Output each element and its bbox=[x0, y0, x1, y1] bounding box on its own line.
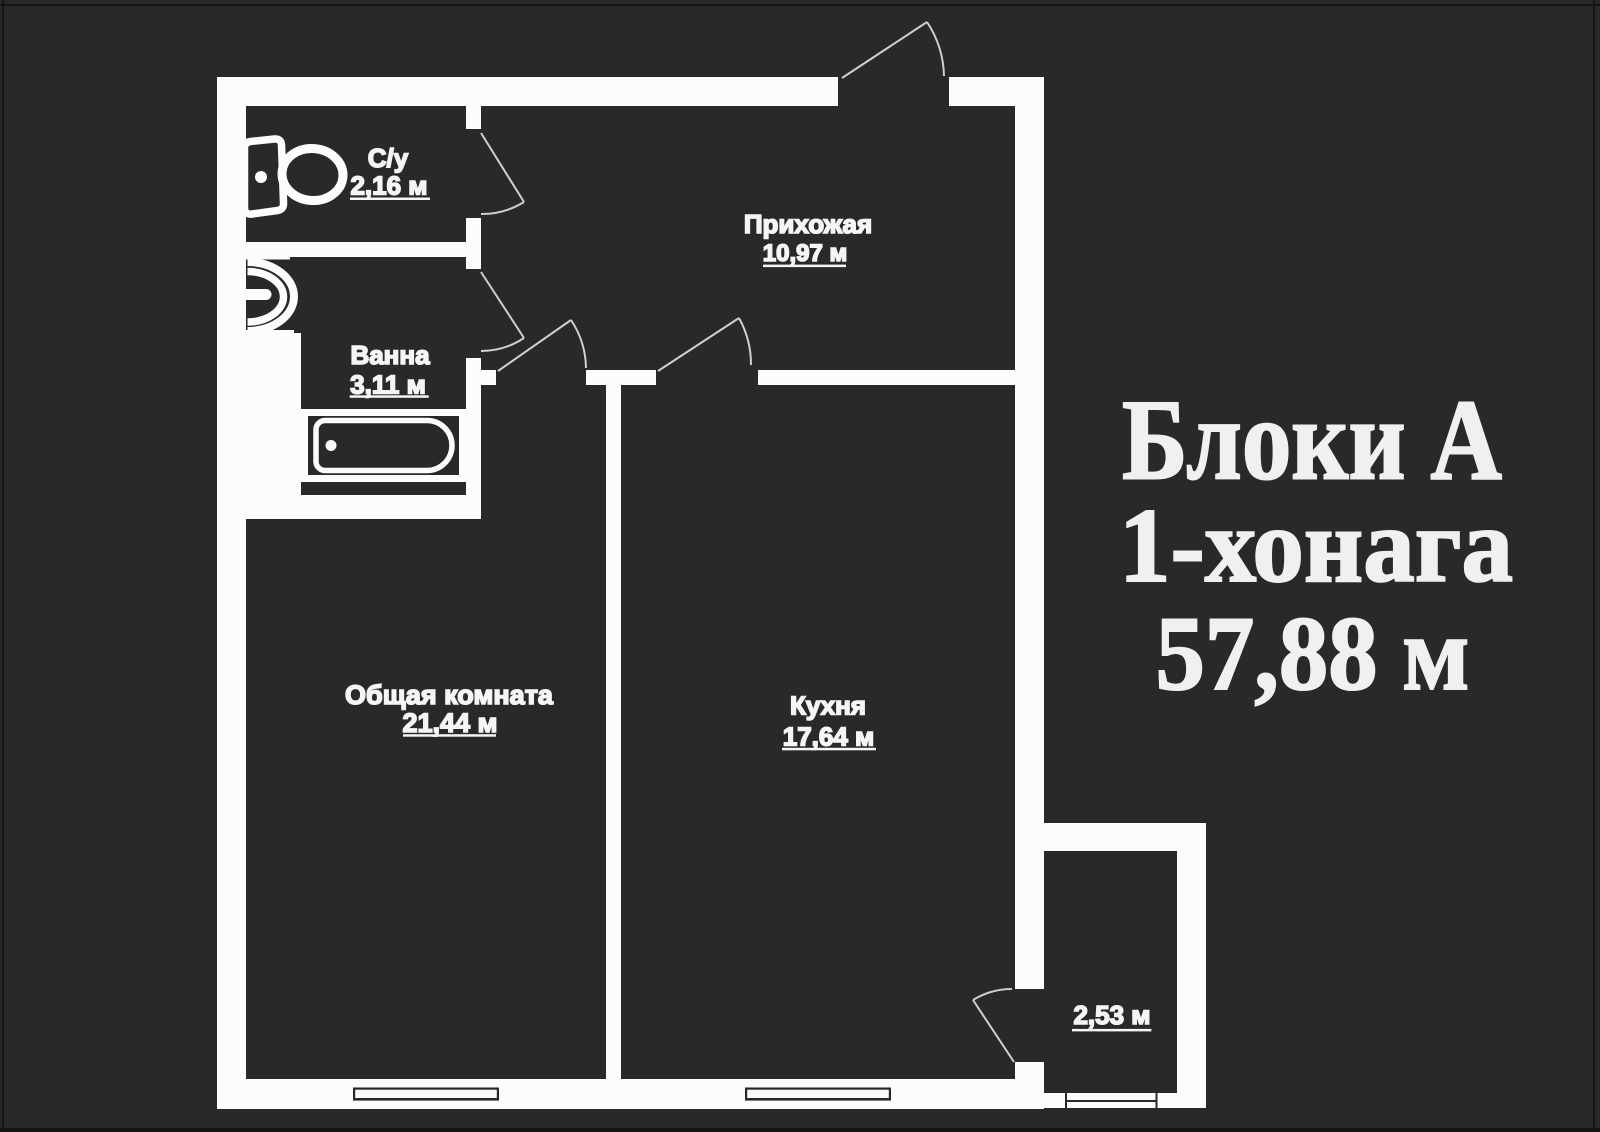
svg-text:3,11 м: 3,11 м bbox=[350, 370, 426, 400]
svg-text:2,16 м: 2,16 м bbox=[350, 171, 427, 201]
svg-text:Ванна: Ванна bbox=[350, 340, 430, 370]
svg-text:1-хонага: 1-хонага bbox=[1119, 487, 1513, 604]
svg-text:С/у: С/у bbox=[368, 143, 409, 173]
svg-text:Общая комната: Общая комната bbox=[345, 680, 554, 710]
svg-text:57,88 м: 57,88 м bbox=[1156, 595, 1470, 712]
svg-text:10,97 м: 10,97 м bbox=[763, 240, 847, 267]
svg-text:2,53 м: 2,53 м bbox=[1073, 1000, 1150, 1030]
svg-text:Прихожая: Прихожая bbox=[744, 209, 872, 239]
svg-text:Кухня: Кухня bbox=[790, 691, 866, 721]
svg-text:17,64 м: 17,64 м bbox=[783, 722, 875, 752]
svg-text:Блоки А: Блоки А bbox=[1122, 377, 1502, 505]
svg-text:21,44 м: 21,44 м bbox=[402, 708, 497, 738]
